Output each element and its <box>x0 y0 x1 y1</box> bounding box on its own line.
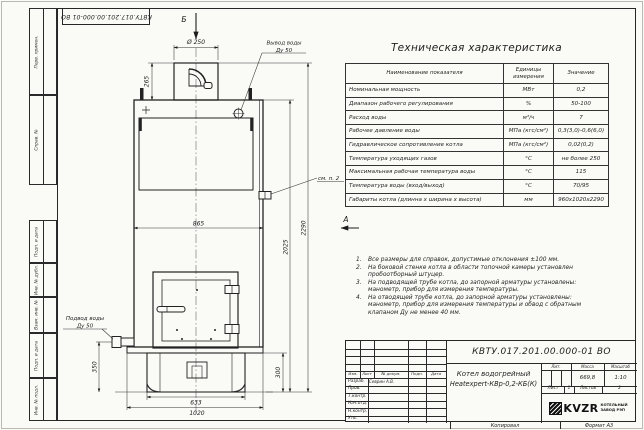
format-label: Формат А3 <box>562 423 636 430</box>
lifting-pin-left <box>140 88 144 100</box>
col-header-docnum: № докум. <box>374 372 408 376</box>
product-name-line2: Heatexpert-КВр-0,2-КБ(К) <box>446 381 541 388</box>
svg-text:265: 265 <box>144 76 151 88</box>
outlet-leader-line <box>241 53 262 110</box>
sheet-label: Лист <box>542 387 564 391</box>
title-block: Изм. Лист № докум. Подп. Дата Разраб. Се… <box>345 340 636 422</box>
table-row: Максимальная рабочая температура воды°С1… <box>346 166 609 180</box>
inlet-label: Подвод воды <box>66 316 105 322</box>
view-a-arrow-icon: А <box>341 215 359 228</box>
col-header-list: Лист <box>360 372 374 376</box>
frame-field-sprav-no: Справ. № <box>29 95 57 185</box>
copied-label: Копировал <box>452 423 558 430</box>
frame-field-inv-dubl: Инв. № дубл. <box>29 263 57 297</box>
dim-total-height: 2290 <box>218 63 312 392</box>
table-row: Номинальная мощностьМВт0,2 <box>346 84 609 98</box>
svg-text:Б: Б <box>181 15 186 24</box>
drawing-sheet: Перв. примен. Справ. № Подп. и дата Инв.… <box>0 0 644 430</box>
svg-text:А: А <box>342 215 348 224</box>
door-handle <box>157 307 185 313</box>
frame-field-vzam-inv: Взам. инв. № <box>29 297 57 333</box>
svg-text:Ø 250: Ø 250 <box>186 39 205 46</box>
scale-value: 1:10 <box>604 376 637 381</box>
svg-text:633: 633 <box>190 400 202 407</box>
mass-value: 669,8 <box>571 376 604 381</box>
table-row: Температура воды (вход/выход)°С70/95 <box>346 179 609 193</box>
svg-text:Ду 50: Ду 50 <box>275 48 293 54</box>
tech-table-title: Техническая характеристика <box>345 42 608 54</box>
tech-table-header: Наименование показателя Единицы измерени… <box>346 64 609 84</box>
sheet-value: 1 <box>564 387 574 391</box>
base-plinth <box>115 347 273 392</box>
view-b-arrow-icon: Б <box>181 13 196 39</box>
note-item: 3.На подводящей трубе котла, до запорной… <box>353 280 611 295</box>
mass-label: Масса <box>571 365 604 369</box>
lifting-pin-right <box>249 88 253 100</box>
staff-nkontr: Н.контр. <box>348 410 367 414</box>
doc-number: КВТУ.017.201.00.000-01 ВО <box>446 348 637 357</box>
dim-inlet-height: 350 <box>92 342 113 392</box>
brand-name: KVZR <box>563 402 598 415</box>
svg-text:865: 865 <box>193 221 205 228</box>
note-item: 4.На отводящей трубе котла, до запорной … <box>353 295 611 317</box>
table-row: Рабочее давление водыМПа (кгс/см²)0,3(3,… <box>346 125 609 139</box>
table-row: Габариты котла (длинна х ширина х высота… <box>346 193 609 207</box>
col-header-data: Дата <box>426 372 446 376</box>
designer-name: Севрин А.В. <box>369 380 394 384</box>
water-inlet-port: Подвод воды Ду 50 <box>63 316 134 348</box>
frame-field-podp-data-1: Подп. и дата <box>29 220 57 263</box>
svg-text:300: 300 <box>275 367 282 379</box>
dim-chimney-height: 265 <box>144 63 175 100</box>
sheets-value: 2 <box>602 387 637 391</box>
inlet-leader-line <box>102 329 113 339</box>
staff-tkontr: Т.контр. <box>348 395 367 399</box>
svg-text:350: 350 <box>92 361 99 373</box>
scale-label: Масштаб <box>604 365 637 369</box>
staff-prov: Пров. <box>348 387 361 391</box>
col-header-podp: Подп. <box>408 372 426 376</box>
outlet-label: Вывод воды <box>266 41 302 47</box>
notes-list: 1.Все размеры для справок, допустимые от… <box>353 257 611 318</box>
table-row: Диапазон рабочего регулирования%50-100 <box>346 97 609 111</box>
staff-razrab: Разраб. <box>348 380 365 384</box>
svg-text:2290: 2290 <box>301 220 308 235</box>
table-row: Гидравлическое сопротивление котлаМПа (к… <box>346 138 609 152</box>
svg-text:Ду 50: Ду 50 <box>76 324 94 330</box>
kvzr-logo-icon <box>550 403 561 414</box>
sheets-label: Листов <box>574 387 602 391</box>
note-item: 2.На боковой стенке котла в области топо… <box>353 265 611 280</box>
staff-nachotd: Нач.отд. <box>348 402 367 406</box>
company-cell: KVZR КОТЕЛЬНЫЙ ЗАВОД РЭП <box>542 394 636 422</box>
frame-field-podp-data-2: Подп. и дата <box>29 333 57 378</box>
company-name: КОТЕЛЬНЫЙ ЗАВОД РЭП <box>601 403 628 412</box>
col-header-izm: Изм. <box>346 372 360 376</box>
product-name-line1: Котел водогрейный <box>446 371 541 378</box>
table-row: Температура уходящих газов°Сне более 250 <box>346 152 609 166</box>
dim-body-width: 865 <box>134 221 263 229</box>
note-item: 1.Все размеры для справок, допустимые от… <box>353 257 611 264</box>
staff-utv: Утв. <box>348 417 357 421</box>
see-note-leader-line <box>271 178 317 194</box>
sampling-fitting: см. п. 2 <box>259 176 344 199</box>
svg-text:1020: 1020 <box>189 410 204 417</box>
see-note-label: см. п. 2 <box>318 176 340 182</box>
boiler-front-view: Б Ø 250 265 <box>55 0 360 430</box>
dim-body-height: 2025 <box>263 100 294 392</box>
lit-label: Лит. <box>541 365 571 369</box>
table-row: Расход водым³/ч7 <box>346 111 609 125</box>
ash-opening <box>187 362 207 378</box>
top-mark-cross <box>142 106 150 114</box>
frame-field-perv-primen: Перв. примен. <box>29 8 57 95</box>
water-outlet-port: Вывод воды Ду 50 <box>233 41 307 120</box>
tech-table: Наименование показателя Единицы измерени… <box>345 63 609 207</box>
svg-text:2025: 2025 <box>283 239 290 254</box>
dim-base-height: 300 <box>263 353 287 392</box>
frame-field-inv-podl: Инв. № подл. <box>29 378 57 421</box>
